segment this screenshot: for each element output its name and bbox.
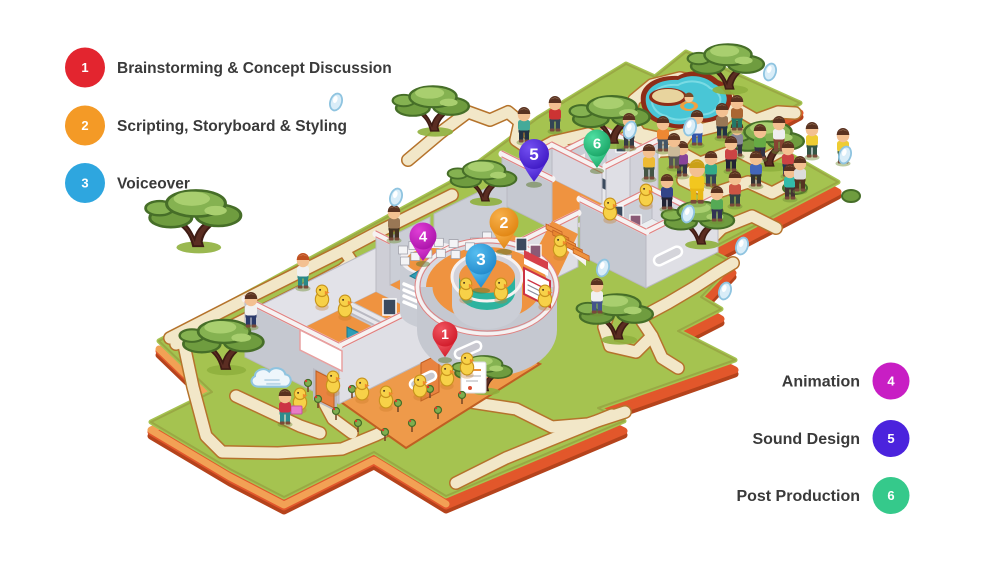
svg-text:1: 1 [81,60,88,75]
svg-text:2: 2 [500,215,509,232]
svg-text:5: 5 [887,431,894,446]
svg-text:3: 3 [81,176,88,191]
svg-text:3: 3 [476,250,485,269]
svg-text:6: 6 [887,488,894,503]
svg-text:4: 4 [419,228,428,245]
svg-text:5: 5 [529,145,538,164]
svg-text:Brainstorming & Concept Discus: Brainstorming & Concept Discussion [117,60,392,77]
svg-text:4: 4 [887,374,895,389]
svg-text:Animation: Animation [782,374,860,391]
svg-text:Sound Design: Sound Design [752,431,860,448]
svg-text:2: 2 [81,118,88,133]
svg-text:6: 6 [593,135,601,152]
svg-text:1: 1 [441,326,449,342]
svg-text:Scripting, Storyboard & Stylin: Scripting, Storyboard & Styling [117,118,347,135]
svg-text:Post Production: Post Production [736,488,860,505]
svg-text:Voiceover: Voiceover [117,176,190,193]
